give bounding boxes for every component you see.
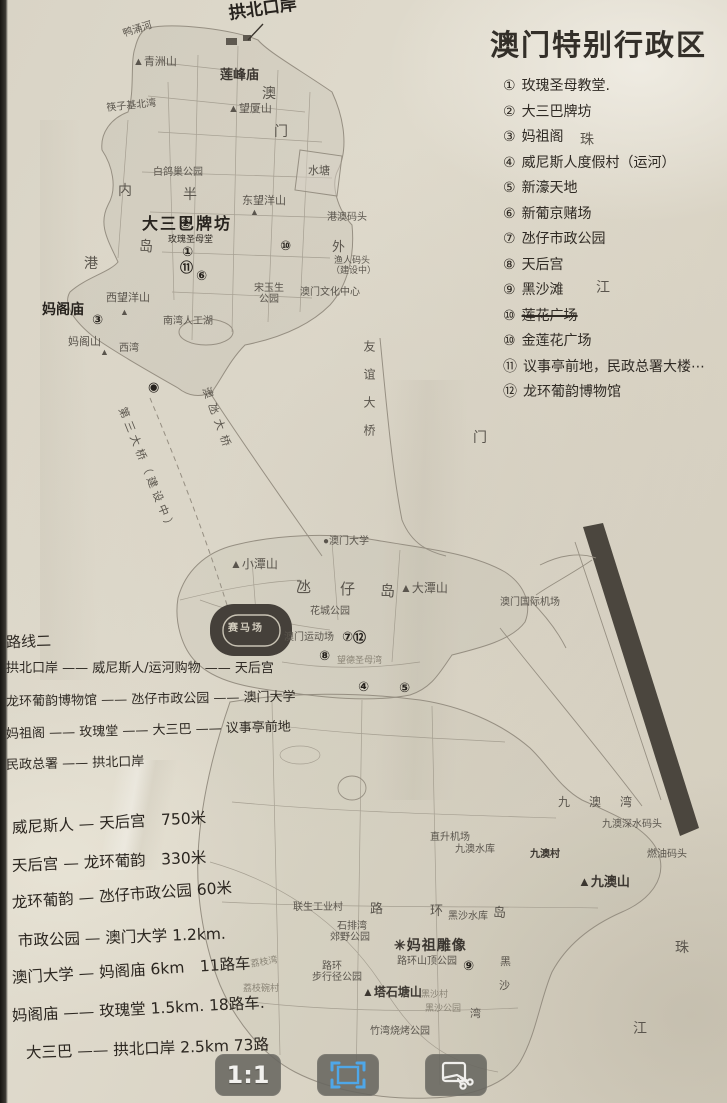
map-label: 岛 [380,585,395,600]
legend-item-text: 议事亭前地，民政总署大楼⋯ [523,355,705,381]
fit-frame-icon [329,1060,367,1090]
route-notes: 路线二 拱北口岸 —— 威尼斯人/运河购物 —— 天后宫龙环葡韵博物馆 —— 氹… [6,626,316,777]
map-label: 友谊大桥 [363,340,375,452]
map-label: ▲小潭山 [230,558,278,570]
legend-item-text: 玫瑰圣母教堂. [522,74,610,100]
map-marker: ⑪ [180,262,193,275]
image-viewer: 拱北口岸鸭涌河▲青洲山莲峰庙澳门▲望厦山筷子基北湾水塘内港半岛白鸽巢公园东望洋山… [0,0,727,1103]
map-label: 妈阁庙 [42,303,84,317]
map-label: 黑 [500,957,511,968]
legend-item: ③妈祖阁 [503,125,727,151]
legend-item-number: ⑦ [503,227,516,253]
map-label: 外 [332,240,345,253]
map-label: 门 [473,432,487,446]
legend-item-number: ⑧ [503,253,516,279]
map-label: ▲ [120,308,129,317]
map-label: 白鸽巢公园 [153,168,203,178]
map-label: 澳 [262,88,276,102]
legend-item: ⑫龙环葡韵博物馆 [503,380,727,406]
legend-item-text: 氹仔市政公园 [522,227,606,253]
map-label: 直升机场 [430,833,470,843]
map-label: 燃油码头 [647,850,687,860]
route-note-line: 拱北口岸 —— 威尼斯人/运河购物 —— 天后宫 [6,653,316,684]
map-label: 港 [84,258,98,272]
map-label: 水塘 [308,166,330,177]
legend-item-number: ⑥ [503,202,516,228]
legend-item-number: ⑪ [503,355,517,381]
map-marker: ③ [92,314,103,327]
map-marker: ⑫ [353,632,366,645]
map-marker: ⑦ [342,631,353,644]
crop-scissors-icon [437,1058,475,1092]
map-label: 九澳水库 [455,845,495,855]
map-label: 玫瑰圣母堂 [168,236,213,245]
map-label: ▲青洲山 [133,57,177,68]
legend-item: ⑪议事亭前地，民政总署大楼⋯ [503,355,727,381]
legend-item: ⑨黑沙滩 [503,278,727,304]
map-label: 岛 [139,241,153,255]
map-label: 九澳深水码头 [602,820,662,830]
map-label: 黑沙村 [421,990,448,999]
actual-size-button[interactable]: 1:1 [215,1054,281,1096]
map-label: 九澳村 [530,850,560,860]
map-title: 澳门特别行政区 [490,22,707,64]
fit-screen-button[interactable] [317,1054,379,1096]
map-label: ▲大潭山 [400,582,448,594]
legend-item-number: ① [503,74,516,100]
legend-item-number: ⑩ [503,304,516,330]
map-label: 氹 [296,581,311,596]
map-label: 门 [274,126,288,140]
actual-size-label: 1:1 [227,1061,270,1089]
map-label: 渔人码头 [334,256,370,265]
photo-edge-shadow [0,0,8,1103]
map-label: ▲望厦山 [228,104,272,115]
legend-item: ⑩金莲花广场 [503,329,727,355]
map-label: 公园 [259,295,279,305]
map-label: 半 [183,189,197,203]
map-marker: ① [182,246,193,259]
legend-item-number: ⑤ [503,176,516,202]
map-marker: ④ [358,681,369,694]
legend-item-number: ② [503,100,516,126]
map-label: ▲塔石塘山 [362,986,422,998]
map-label: 九 澳 湾 [558,796,640,808]
legend-item: ⑧天后宫 [503,253,727,279]
legend-item-text: 莲花广场 [522,304,578,330]
map-label: 澳门文化中心 [300,288,360,298]
map-label: 路环山顶公园 [397,957,457,967]
legend-item-text: 威尼斯人度假村（运河） [522,151,676,177]
map-label: 澳门国际机场 [500,598,560,608]
legend-item: ⑤新濠天地 [503,176,727,202]
route-notes-lines: 拱北口岸 —— 威尼斯人/运河购物 —— 天后宫龙环葡韵博物馆 —— 氹仔市政公… [6,653,316,777]
map-label: 岛 [493,906,506,919]
map-label: 花城公园 [310,607,350,617]
map-marker: ② [180,218,191,231]
map-label: 石排湾 [337,922,367,932]
map-label: 港澳码头 [327,213,367,223]
legend-item-number: ⑫ [503,380,517,406]
map-label: ▲ [100,348,109,357]
legend-item: ⑩莲花广场 [503,304,727,330]
map-label: 湾 [470,1009,481,1020]
map-label: 东望洋山 [242,196,286,207]
map-label: 路环 [322,962,342,972]
legend-item: ①玫瑰圣母教堂. [503,74,727,100]
legend-item-text: 新濠天地 [522,176,578,202]
legend-item-text: 金莲花广场 [522,329,592,355]
map-label: 西湾 [119,344,139,354]
map-label: （建设中） [331,266,376,275]
map-marker: ⑨ [463,960,474,973]
map-marker: ⑩ [280,240,291,253]
legend-item: ④威尼斯人度假村（运河） [503,151,727,177]
legend-item: ②大三巴牌坊 [503,100,727,126]
legend-item-text: 妈祖阁 [522,125,564,151]
legend-item-number: ⑩ [503,329,516,355]
map-marker: ⑤ [399,682,410,695]
map-label: 内 [118,185,132,199]
legend-item: ⑦氹仔市政公园 [503,227,727,253]
legend-item-number: ④ [503,151,516,177]
legend-item: ⑥新葡京赌场 [503,202,727,228]
map-label: 妈阁山 [68,337,101,348]
map-label: 路 [370,902,383,915]
map-label: 珠 [675,942,689,956]
legend-item-number: ③ [503,125,516,151]
distance-notes: 威尼斯人 — 天后宫 750米天后宫 — 龙环葡韵 330米龙环葡韵 — 氹仔市… [12,810,322,1073]
legend-list: ①玫瑰圣母教堂.②大三巴牌坊③妈祖阁④威尼斯人度假村（运河）⑤新濠天地⑥新葡京赌… [503,74,727,406]
map-label: ✳妈祖雕像 [394,940,467,954]
map-label: 黑沙公园 [425,1004,461,1013]
map-label: 莲峰庙 [220,68,259,81]
map-label: ▲九澳山 [578,875,630,888]
map-label: 宋玉生 [254,284,284,294]
map-label: 黑沙水库 [448,912,488,922]
map-label: 南湾人工湖 [163,317,213,327]
legend-item-text: 大三巴牌坊 [522,100,592,126]
map-label: 沙 [499,981,510,992]
map-marker: ⑧ [319,650,330,663]
map-label: 环 [430,904,443,917]
map-label: 西望洋山 [106,293,150,304]
legend-item-text: 天后宫 [522,253,564,279]
map-label: 江 [633,1023,647,1037]
map-label: 仔 [340,583,355,598]
route-notes-heading: 路线二 [6,621,317,653]
map-label: ▲ [250,208,259,217]
map-marker: ⑥ [196,270,207,283]
legend-item-number: ⑨ [503,278,516,304]
map-marker: ◉ [148,381,159,394]
map-label: 郊野公园 [330,933,370,943]
crop-button[interactable] [425,1054,487,1096]
legend-item-text: 黑沙滩 [522,278,564,304]
map-label: 望德圣母湾 [337,656,382,665]
map-label: ●澳门大学 [323,537,369,547]
legend-item-text: 新葡京赌场 [522,202,592,228]
legend-item-text: 龙环葡韵博物馆 [523,380,621,406]
map-label: 竹湾烧烤公园 [370,1027,430,1037]
